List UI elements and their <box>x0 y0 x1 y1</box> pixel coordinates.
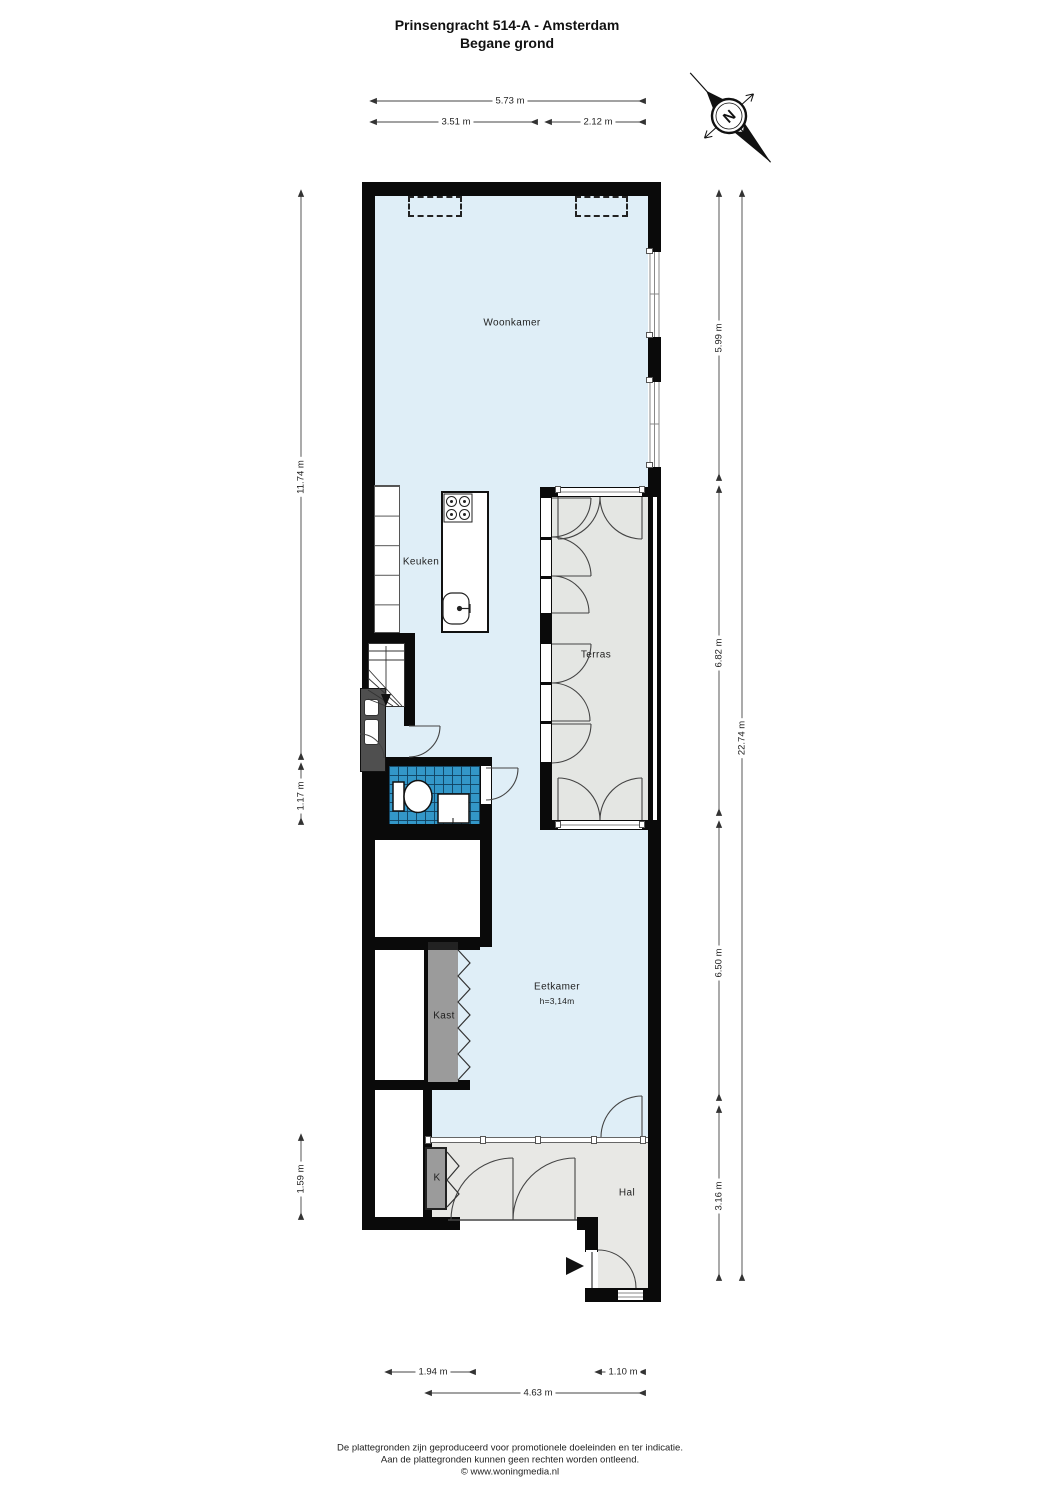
dim-top-right: 2.12 m <box>580 117 615 128</box>
label-terras: Terras <box>581 650 611 661</box>
label-woonkamer: Woonkamer <box>483 318 540 329</box>
partition-mullion <box>535 1136 541 1144</box>
footer-disclaimer-1: De plattegronden zijn geproduceerd voor … <box>337 1443 683 1454</box>
window-sill <box>646 377 653 383</box>
page-title: Prinsengracht 514-A - Amsterdam <box>395 17 620 33</box>
dim-bottom-total: 4.63 m <box>520 1388 555 1399</box>
label-hal: Hal <box>619 1188 635 1199</box>
dim-right-1: 5.99 m <box>714 320 725 355</box>
dim-right-total: 22.74 m <box>737 718 748 758</box>
floorplan-page: Prinsengracht 514-A - Amsterdam Begane g… <box>0 0 1060 1500</box>
label-eetkamer: Eetkamer <box>534 982 580 993</box>
toilet-sink-icon <box>438 794 469 823</box>
dim-top-left: 3.51 m <box>438 117 473 128</box>
page-subtitle: Begane grond <box>460 35 554 51</box>
accordion-doors <box>447 950 470 1207</box>
entrance-arrow-icon <box>566 1257 584 1275</box>
terrace-door-jamb <box>555 486 561 493</box>
dim-top-total: 5.73 m <box>492 96 527 107</box>
door-swings <box>360 497 642 1288</box>
terrace-door-jamb <box>639 486 645 493</box>
dim-right-3: 6.50 m <box>714 945 725 980</box>
partition-mullion <box>480 1136 486 1144</box>
terrace-door-jamb <box>639 821 645 828</box>
footer-disclaimer-2: Aan de plattegronden kunnen geen rechten… <box>381 1455 639 1466</box>
dim-bottom-right: 1.10 m <box>605 1367 640 1378</box>
footer-copyright: © www.woningmedia.nl <box>461 1467 559 1478</box>
window-sill <box>646 248 653 254</box>
label-eetkamer-height: h=3,14m <box>540 996 575 1006</box>
dim-left-3: 1.59 m <box>296 1161 307 1196</box>
window-sill <box>646 332 653 338</box>
dim-left-1: 11.74 m <box>296 457 307 497</box>
plan-linework: N <box>0 0 1060 1500</box>
dim-bottom-left: 1.94 m <box>415 1367 450 1378</box>
compass-icon: N <box>666 51 796 185</box>
label-k: K <box>433 1173 440 1184</box>
sink-icon <box>443 593 470 624</box>
terrace-door-jamb <box>555 821 561 828</box>
window-sill <box>646 462 653 468</box>
toilet-icon <box>393 781 432 813</box>
partition-mullion <box>425 1136 431 1144</box>
dimension-lines <box>301 101 742 1393</box>
dim-left-2: 1.17 m <box>296 778 307 813</box>
partition-mullion <box>640 1136 646 1144</box>
partition-mullion <box>591 1136 597 1144</box>
label-keuken: Keuken <box>403 557 439 568</box>
dim-right-4: 3.16 m <box>714 1178 725 1213</box>
hob-icon <box>444 494 472 522</box>
label-kast: Kast <box>433 1011 455 1022</box>
dim-right-2: 6.82 m <box>714 635 725 670</box>
